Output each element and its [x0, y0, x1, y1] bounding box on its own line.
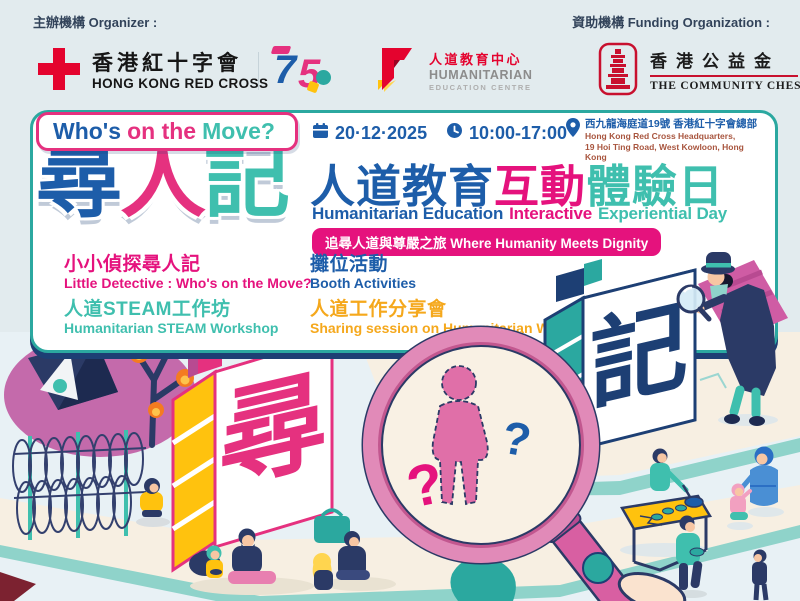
- red-cross-logo: 香港紅十字會 HONG KONG RED CROSS: [36, 46, 268, 97]
- 75th-anniversary-logo: 7 5: [272, 42, 334, 94]
- event-poster: 主辦機構 Organizer : 資助機構 Funding Organizati…: [0, 0, 800, 601]
- hec-name-en1: HUMANITARIAN: [429, 68, 532, 83]
- hec-name-en2: EDUCATION CENTRE: [429, 83, 532, 92]
- venue-zh: 西九龍海庭道19號 香港紅十字會總部: [585, 118, 766, 131]
- tagline-word-3: Move?: [202, 118, 275, 144]
- red-cross-icon: [36, 46, 82, 97]
- community-chest-pagoda-icon: [598, 42, 638, 101]
- red-cross-name-en: HONG KONG RED CROSS: [92, 76, 268, 91]
- question-mark-pink: ?: [401, 450, 449, 521]
- hec-logo-icon: [374, 44, 420, 99]
- aid-distribution-illustration: [620, 449, 710, 599]
- magnifying-glass-illustration: ? ?: [363, 327, 689, 601]
- community-chest-name-en: THE COMMUNITY CHEST: [650, 80, 800, 92]
- tagline-word-1: Who's: [53, 118, 121, 144]
- event-title-en: Humanitarian EducationInteractiveExperie…: [312, 204, 733, 224]
- tagline-word-2: on the: [127, 118, 196, 144]
- anniversary-digit-7: 7: [274, 48, 296, 93]
- logo-divider: [258, 52, 259, 90]
- theme-pill: 追尋人道與尊嚴之旅 Where Humanity Meets Dignity: [312, 228, 661, 256]
- question-mark-blue: ?: [498, 411, 535, 467]
- path-upper-edge: [374, 412, 800, 496]
- footprints-illustration: [467, 420, 515, 457]
- sitting-child-illustration: [136, 478, 170, 527]
- program-item-booth-activities: 攤位活動 Booth Activities: [310, 254, 724, 292]
- building-left: 尋: [173, 337, 332, 570]
- path-upper: [356, 332, 800, 480]
- community-chest-logo: 香港公益金 THE COMMUNITY CHEST: [598, 42, 800, 101]
- event-date-text: 20·12·2025: [335, 123, 427, 144]
- event-title-en-part1: Humanitarian Education: [312, 204, 503, 223]
- pointing-hand: [615, 566, 690, 601]
- program-item-little-detective: 小小偵探尋人記 Little Detective : Who's on the …: [64, 254, 310, 292]
- magnifier-handle: [540, 505, 666, 601]
- event-title-en-part2: Interactive: [509, 204, 592, 223]
- event-time-text: 10:00-17:00: [469, 123, 567, 144]
- ground: [0, 332, 800, 601]
- organizer-label: 主辦機構 Organizer :: [33, 12, 157, 31]
- missing-person-silhouette: [433, 366, 488, 504]
- community-chest-name-zh: 香港公益金: [650, 51, 800, 73]
- program-item-sharing-session: 人道工作分享會 Sharing session on Humanitarian …: [310, 299, 724, 337]
- ground-cracks: [652, 374, 726, 412]
- holding-hand-teal: [450, 558, 515, 601]
- hec-name-zh: 人道教育中心: [429, 52, 532, 68]
- humanitarian-education-centre-logo: 人道教育中心 HUMANITARIAN EDUCATION CENTRE: [374, 44, 532, 99]
- event-title-en-part3: Experiential Day: [598, 204, 727, 223]
- program-list: 小小偵探尋人記 Little Detective : Who's on the …: [64, 254, 724, 337]
- red-cross-name-zh: 香港紅十字會: [92, 52, 268, 76]
- funding-organization-label: 資助機構 Funding Organization :: [572, 12, 770, 31]
- clock-icon: [446, 122, 463, 144]
- gripping-hand-teal: [583, 553, 613, 583]
- community-chest-rule: [650, 75, 798, 77]
- building-left-character: 尋: [219, 359, 327, 504]
- venue-en-line1: Hong Kong Red Cross Headquarters,: [585, 131, 766, 142]
- refugee-family-illustration: [189, 510, 396, 595]
- tagline-badge: Who'son theMove?: [36, 112, 298, 151]
- path-lower-edge: [0, 525, 800, 601]
- event-time: 10:00-17:00: [446, 122, 567, 144]
- mother-child-illustration: [727, 447, 784, 531]
- path-lower: [0, 485, 800, 601]
- calendar-icon: [312, 122, 329, 144]
- program-item-steam-workshop: 人道STEAM工作坊 Humanitarian STEAM Workshop: [64, 299, 310, 337]
- barbed-wire-illustration: [13, 430, 146, 540]
- event-date: 20·12·2025: [312, 122, 427, 144]
- supply-box-illustration: [508, 454, 548, 482]
- corner-shape: [0, 572, 36, 601]
- standing-person-illustration: [752, 550, 767, 601]
